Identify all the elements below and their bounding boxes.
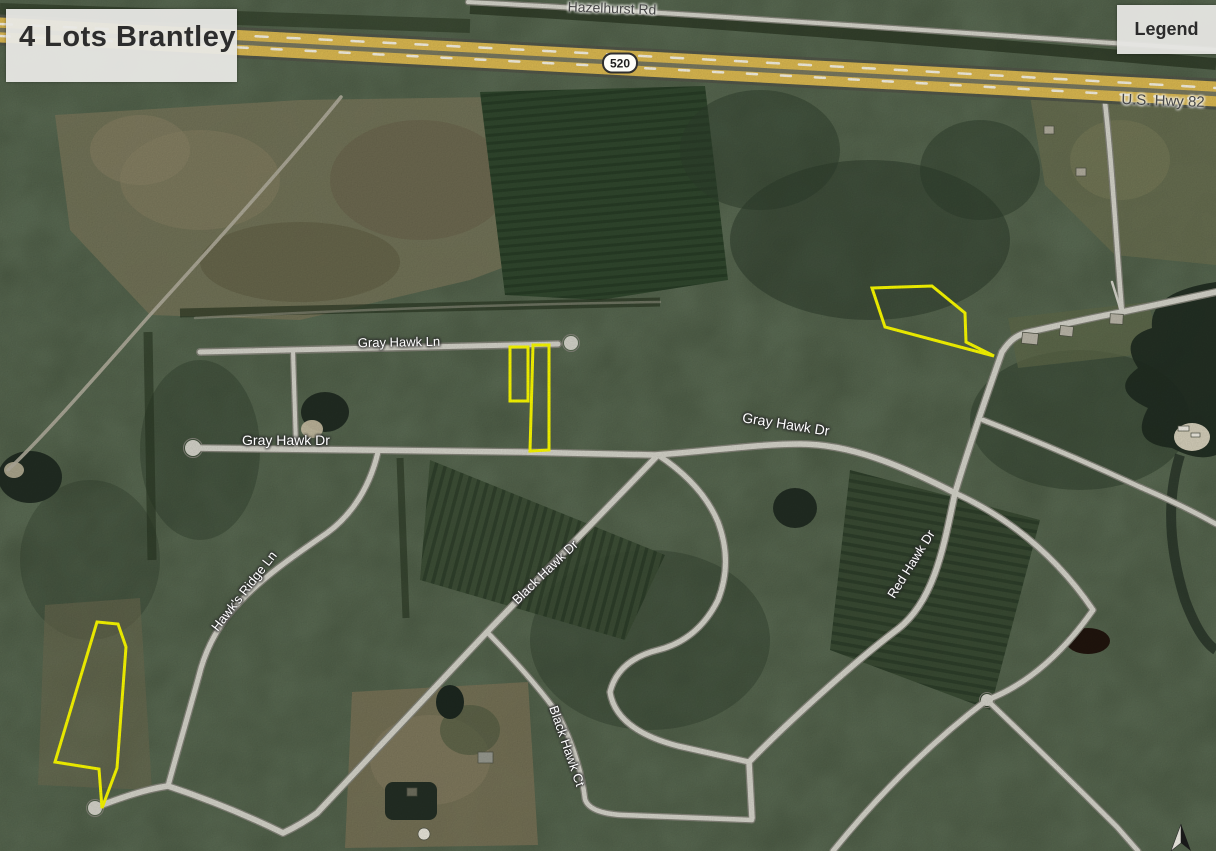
title-box: 4 Lots Brantley bbox=[6, 9, 237, 82]
page-title: 4 Lots Brantley bbox=[19, 21, 236, 54]
legend-label: Legend bbox=[1134, 19, 1198, 40]
legend-box[interactable]: Legend bbox=[1117, 5, 1216, 54]
highway-shield-520: 520 bbox=[602, 53, 638, 74]
image-grain bbox=[0, 0, 1216, 851]
satellite-imagery bbox=[0, 0, 1216, 851]
map-canvas[interactable]: Hazelhurst Rd U.S. Hwy 82 Gray Hawk Ln G… bbox=[0, 0, 1216, 851]
